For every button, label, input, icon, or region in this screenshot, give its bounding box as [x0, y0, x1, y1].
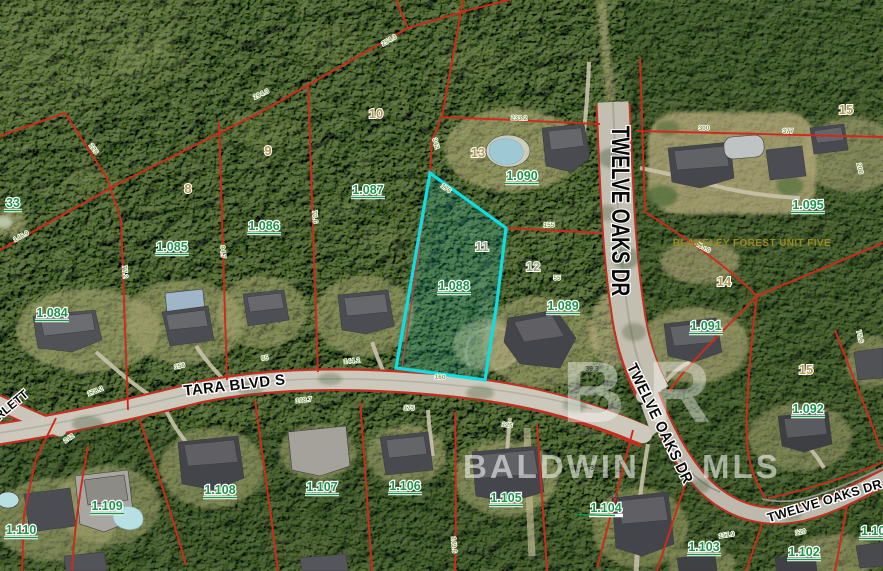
- svg-text:1.085: 1.085: [156, 240, 187, 254]
- svg-text:70.6: 70.6: [311, 210, 319, 223]
- svg-text:377: 377: [783, 128, 794, 135]
- svg-text:8: 8: [184, 181, 191, 196]
- svg-text:1.086: 1.086: [248, 219, 279, 233]
- svg-text:35.3: 35.3: [590, 465, 604, 472]
- svg-text:233.2: 233.2: [511, 115, 528, 123]
- svg-text:1.10: 1.10: [861, 524, 883, 538]
- svg-text:1.110: 1.110: [6, 523, 37, 537]
- svg-text:155: 155: [544, 222, 555, 229]
- svg-text:1.104: 1.104: [590, 501, 621, 515]
- svg-text:1.102: 1.102: [788, 545, 819, 559]
- svg-text:1.109: 1.109: [91, 499, 122, 513]
- svg-text:33: 33: [6, 196, 20, 210]
- svg-text:1.107: 1.107: [306, 480, 337, 494]
- svg-text:1.106: 1.106: [389, 479, 420, 493]
- svg-text:160: 160: [435, 374, 446, 381]
- svg-text:1.095: 1.095: [792, 198, 823, 212]
- svg-text:300: 300: [699, 125, 710, 132]
- svg-text:175: 175: [403, 405, 415, 413]
- svg-text:1.091: 1.091: [690, 319, 721, 333]
- svg-text:TWELVE OAKS DR: TWELVE OAKS DR: [606, 126, 634, 297]
- svg-text:77.2: 77.2: [121, 265, 129, 278]
- svg-text:1.090: 1.090: [506, 169, 537, 183]
- svg-text:144.2: 144.2: [344, 357, 361, 365]
- svg-text:11: 11: [475, 239, 489, 254]
- svg-text:9: 9: [264, 143, 271, 158]
- svg-text:14: 14: [717, 274, 732, 289]
- svg-text:48.3: 48.3: [605, 493, 619, 500]
- svg-text:1.092: 1.092: [792, 402, 823, 416]
- svg-text:12: 12: [526, 259, 540, 274]
- svg-text:1.084: 1.084: [36, 306, 67, 320]
- svg-text:10: 10: [369, 106, 383, 121]
- svg-text:15: 15: [799, 362, 813, 377]
- svg-text:13: 13: [471, 145, 485, 160]
- svg-text:B: B: [562, 344, 625, 441]
- svg-text:55: 55: [553, 275, 561, 282]
- svg-text:1.089: 1.089: [547, 299, 578, 313]
- svg-text:1.088: 1.088: [438, 279, 469, 293]
- svg-text:39.3: 39.3: [585, 366, 599, 373]
- svg-text:1.103: 1.103: [688, 540, 719, 554]
- svg-text:1.108: 1.108: [204, 483, 235, 497]
- svg-text:94.7: 94.7: [219, 245, 227, 258]
- svg-text:BALDWIN: BALDWIN: [463, 448, 640, 485]
- svg-text:MLS: MLS: [702, 448, 781, 485]
- svg-text:BLAKELEY FOREST UNIT FIVE: BLAKELEY FOREST UNIT FIVE: [673, 238, 831, 249]
- svg-text:15: 15: [839, 102, 853, 117]
- svg-text:65: 65: [261, 354, 270, 362]
- svg-text:149.6: 149.6: [449, 537, 457, 554]
- svg-text:1.105: 1.105: [490, 491, 521, 505]
- svg-text:1.087: 1.087: [352, 183, 383, 197]
